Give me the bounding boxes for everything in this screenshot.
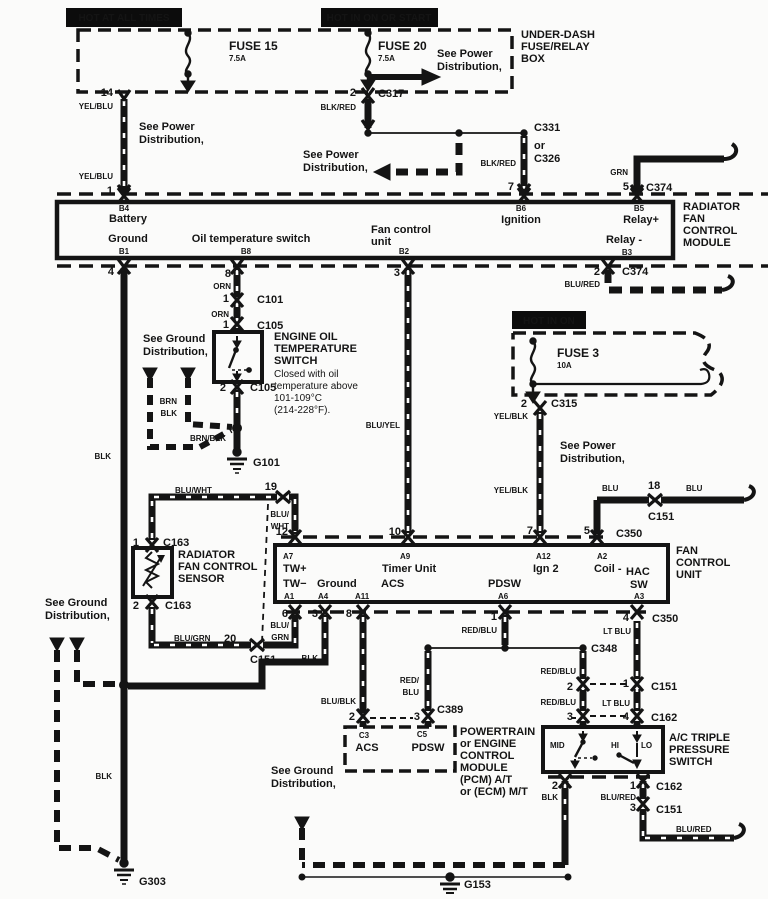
fuse3-feed-line xyxy=(536,369,709,384)
label-fcu-a11: A11 xyxy=(355,592,370,601)
label-module-ignition: Ignition xyxy=(501,214,541,226)
label-wire-orn-1: ORN xyxy=(213,282,231,291)
label-hot-in-on-or-start: HOT IN ON OR START xyxy=(327,13,432,24)
label-wire-ltblu-2: LT BLU xyxy=(603,627,631,636)
label-conn-c350-bot: C350 xyxy=(652,613,678,625)
label-wire-redblu-1: RED/BLU xyxy=(461,626,497,635)
wire-gnd-left-2 xyxy=(77,650,118,684)
label-conn-c326-or: or xyxy=(534,140,546,152)
engine-oil-temp-switch-symbol xyxy=(229,336,251,381)
label-eots-3: SWITCH xyxy=(274,355,317,367)
label-rfcs-1: RADIATOR xyxy=(178,549,235,561)
label-fcu-twminus: TW− xyxy=(283,578,307,590)
label-rfcm-2: FAN xyxy=(683,213,705,225)
label-module-b1: B1 xyxy=(119,247,130,256)
label-module-fan-b: unit xyxy=(371,236,391,248)
label-wire-yelblu-2: YEL/BLU xyxy=(79,172,113,181)
label-fcu-a4: A4 xyxy=(318,592,329,601)
label-pin-2-c315: 2 xyxy=(521,398,527,410)
label-module-b2: B2 xyxy=(399,247,410,256)
label-module-oil-temp: Oil temperature switch xyxy=(192,233,311,245)
label-fcu-ign2: Ign 2 xyxy=(533,563,559,575)
label-pin-1-a6: 1 xyxy=(491,611,497,623)
label-fcu-pdsw: PDSW xyxy=(488,578,522,590)
label-wire-bluyel: BLU/YEL xyxy=(366,421,400,430)
label-conn-c326: C326 xyxy=(534,153,560,165)
label-pin-2-c105: 2 xyxy=(220,382,226,394)
label-pin-20: 20 xyxy=(224,633,236,645)
label-wire-redblu-pcm-b: BLU xyxy=(403,688,420,697)
label-pcm-1: POWERTRAIN xyxy=(460,726,535,738)
gnd-dist-arrow-brn xyxy=(143,368,157,381)
label-fuse20-amp: 7.5A xyxy=(378,54,395,63)
label-pin-4-c162: 4 xyxy=(623,711,630,723)
label-pin-5-c374: 5 xyxy=(623,181,629,193)
label-module-b5: B5 xyxy=(634,204,645,213)
label-pin-18: 18 xyxy=(648,480,660,492)
label-see-power-1b: Distribution, xyxy=(437,61,502,73)
label-fcu-acs: ACS xyxy=(381,578,404,590)
see-power-left-arrowhead xyxy=(374,164,390,180)
label-eots-2: TEMPERATURE xyxy=(274,343,357,355)
label-pin-2-c374: 2 xyxy=(594,266,600,278)
label-see-power-3a: See Power xyxy=(303,149,359,161)
label-wire-blk-5: BLK xyxy=(96,772,113,781)
label-module-b8: B8 xyxy=(241,247,252,256)
label-fuse3-amp: 10A xyxy=(557,361,572,370)
gnd-dist-arrow-left2 xyxy=(70,638,84,651)
label-conn-c163-bot: C163 xyxy=(165,600,191,612)
label-wire-yelblk-2: YEL/BLK xyxy=(494,486,528,495)
label-wire-blkred-2: BLK/RED xyxy=(480,159,516,168)
label-see-power-1a: See Power xyxy=(437,48,493,60)
ground-g101 xyxy=(227,448,247,473)
label-conn-c151-18: C151 xyxy=(648,511,674,523)
label-fuse20-name: FUSE 20 xyxy=(378,39,427,53)
radiator-fan-sensor-symbol xyxy=(143,552,165,588)
label-pin-1-c163: 1 xyxy=(133,537,139,549)
wiring-diagram-page: HOT AT ALL TIMESHOT IN ON OR STARTFUSE 1… xyxy=(0,0,768,899)
label-gnd-g101: G101 xyxy=(253,457,280,469)
label-gnd-g303: G303 xyxy=(139,876,166,888)
label-wire-yelblu-1: YEL/BLU xyxy=(79,102,113,111)
label-pin-3-c151: 3 xyxy=(630,802,636,814)
gnd-dist-arrow-left1 xyxy=(50,638,64,651)
label-pcm-c5: C5 xyxy=(417,730,428,739)
label-fcu-coil: Coil - xyxy=(594,563,622,575)
label-see-power-4b: Distribution, xyxy=(560,453,625,465)
label-underdash-1: UNDER-DASH xyxy=(521,29,595,41)
label-see-ground-3b: Distribution, xyxy=(271,778,336,790)
label-see-ground-1b: Distribution, xyxy=(143,346,208,358)
label-pin-3-c389: 3 xyxy=(414,711,420,723)
label-underdash-2: FUSE/RELAY xyxy=(521,41,590,53)
diagram-labels: HOT AT ALL TIMESHOT IN ON OR STARTFUSE 1… xyxy=(45,13,740,891)
label-pin-2-acts: 2 xyxy=(552,780,558,792)
label-pin-8-a11: 8 xyxy=(346,608,352,620)
label-pin-3-b2: 3 xyxy=(394,267,400,279)
flow-arrows xyxy=(50,69,440,830)
label-pcm-pdsw: PDSW xyxy=(412,742,446,754)
label-pin-1-c105: 1 xyxy=(223,319,229,331)
label-conn-c348: C348 xyxy=(591,643,617,655)
label-pcm-c3: C3 xyxy=(359,731,370,740)
label-module-ground: Ground xyxy=(108,233,148,245)
label-conn-c151-mid: C151 xyxy=(651,681,677,693)
label-module-b3: B3 xyxy=(622,248,633,257)
label-conn-c374-top: C374 xyxy=(646,182,673,194)
label-acts-3: SWITCH xyxy=(669,756,712,768)
label-eots-note-4: (214-228°F). xyxy=(274,405,330,416)
label-fuse3-name: FUSE 3 xyxy=(557,346,599,360)
label-see-ground-3a: See Ground xyxy=(271,765,333,777)
label-pin-4-a3: 4 xyxy=(623,612,630,624)
label-rfcm-3: CONTROL xyxy=(683,225,738,237)
label-see-ground-1a: See Ground xyxy=(143,333,205,345)
hot-in-on-fuse-box-outline xyxy=(513,333,722,395)
label-wire-blu-2: BLU xyxy=(686,484,703,493)
label-conn-c317: C317 xyxy=(378,88,404,100)
label-module-relay-plus: Relay+ xyxy=(623,214,659,226)
label-see-ground-2a: See Ground xyxy=(45,597,107,609)
label-acts-2: PRESSURE xyxy=(669,744,730,756)
label-wire-brn: BRN xyxy=(160,397,178,406)
label-wire-redblu-pcm-a: RED/ xyxy=(400,676,420,685)
label-wire-blugrn-1: BLU/GRN xyxy=(174,634,211,643)
label-rfcs-3: SENSOR xyxy=(178,573,225,585)
label-rfcm-4: MODULE xyxy=(683,237,731,249)
label-fcu-timer-unit: Timer Unit xyxy=(382,563,437,575)
label-conn-c162-bot: C162 xyxy=(656,781,682,793)
label-pcm-6: or (ECM) M/T xyxy=(460,786,528,798)
label-eots-1: ENGINE OIL xyxy=(274,331,338,343)
label-wire-grn: GRN xyxy=(610,168,628,177)
gnd-dist-arrow-bottom xyxy=(295,817,309,830)
label-module-battery: Battery xyxy=(109,213,148,225)
label-pin-1-c151: 1 xyxy=(623,678,629,690)
label-hot-in-on: HOT IN ON xyxy=(523,316,575,327)
label-wire-bluwht-2b: WHT xyxy=(271,522,289,531)
c151-connector-link xyxy=(262,504,268,642)
label-pin-1-c101: 1 xyxy=(223,293,229,305)
label-pin-2-c151: 2 xyxy=(567,681,573,693)
label-fuse15-name: FUSE 15 xyxy=(229,39,278,53)
label-wire-bluwht-2a: BLU/ xyxy=(270,510,289,519)
label-wire-blk-2: BLK xyxy=(95,452,112,461)
label-pin-2-c163: 2 xyxy=(133,600,139,612)
label-acts-1: A/C TRIPLE xyxy=(669,732,730,744)
label-module-b6: B6 xyxy=(516,204,527,213)
label-pin-3-a4: 3 xyxy=(312,608,318,620)
label-conn-c389: C389 xyxy=(437,704,463,716)
label-wire-blugrn-2a: BLU/ xyxy=(270,621,289,630)
label-wire-brnblk: BRN/BLK xyxy=(190,434,226,443)
label-wire-redblu-3: RED/BLU xyxy=(540,698,576,707)
label-module-b4: B4 xyxy=(119,204,130,213)
label-wire-blublk: BLU/BLK xyxy=(321,697,356,706)
label-fcu-hac: HAC xyxy=(626,566,650,578)
label-module-relay-minus: Relay - xyxy=(606,234,642,246)
label-pin-1: 1 xyxy=(107,185,113,197)
label-fcu-sw: SW xyxy=(630,579,648,591)
label-wire-blk-3: BLK xyxy=(302,654,319,663)
label-conn-c151-bot: C151 xyxy=(656,804,682,816)
label-acts-mid: MID xyxy=(550,741,565,750)
label-eots-note-1: Closed with oil xyxy=(274,369,338,380)
label-wire-blured-3: BLU/RED xyxy=(676,825,712,834)
label-fcu-a7: A7 xyxy=(283,552,294,561)
label-pcm-4: MODULE xyxy=(460,762,508,774)
label-conn-c101: C101 xyxy=(257,294,283,306)
label-pin-10: 10 xyxy=(389,526,401,538)
label-conn-c151-sensor: C151 xyxy=(250,654,276,666)
label-gnd-g153: G153 xyxy=(464,879,491,891)
radiator-fan-control-module-box xyxy=(57,202,673,258)
label-wire-yelblk-1: YEL/BLK xyxy=(494,412,528,421)
label-fuse15-amp: 7.5A xyxy=(229,54,246,63)
label-pin-4: 4 xyxy=(108,266,115,278)
fuse-3 xyxy=(526,338,709,403)
ground-g303 xyxy=(114,859,134,884)
wire-see-power-arrow xyxy=(390,143,459,172)
label-wire-blured-2: BLU/RED xyxy=(600,793,636,802)
label-conn-c331: C331 xyxy=(534,122,560,134)
label-pin-8: 8 xyxy=(225,268,231,280)
label-pin-19: 19 xyxy=(265,481,277,493)
label-fcu-a3: A3 xyxy=(634,592,645,601)
label-pcm-3: CONTROL xyxy=(460,750,515,762)
label-wire-blk-1: BLK xyxy=(161,409,178,418)
label-rfcm-1: RADIATOR xyxy=(683,201,740,213)
label-see-power-3b: Distribution, xyxy=(303,162,368,174)
label-pin-5-c350: 5 xyxy=(584,525,590,537)
label-fcu-label-3: UNIT xyxy=(676,569,702,581)
label-see-power-2a: See Power xyxy=(139,121,195,133)
label-pcm-2: or ENGINE xyxy=(460,738,516,750)
ac-triple-pressure-switch-symbols xyxy=(571,731,641,768)
label-pin-2-c389: 2 xyxy=(349,711,355,723)
label-pcm-5: (PCM) A/T xyxy=(460,774,512,786)
label-wire-orn-2: ORN xyxy=(211,310,229,319)
label-pcm-acs: ACS xyxy=(355,742,378,754)
label-underdash-3: BOX xyxy=(521,53,546,65)
label-fcu-a2: A2 xyxy=(597,552,608,561)
ground-g153 xyxy=(440,873,460,893)
label-conn-c163-top: C163 xyxy=(163,537,189,549)
wiring-diagram-canvas: HOT AT ALL TIMESHOT IN ON OR STARTFUSE 1… xyxy=(0,0,768,899)
label-fcu-label-2: CONTROL xyxy=(676,557,731,569)
label-pin-6: 6 xyxy=(282,608,288,620)
label-wire-blugrn-2b: GRN xyxy=(271,633,289,642)
label-fcu-a1: A1 xyxy=(284,592,295,601)
label-hot-at-all-times: HOT AT ALL TIMES xyxy=(78,13,169,24)
label-eots-note-3: 101-109°C xyxy=(274,393,322,404)
label-rfcs-2: FAN CONTROL xyxy=(178,561,258,573)
label-pin-14: 14 xyxy=(101,87,114,99)
label-see-ground-2b: Distribution, xyxy=(45,610,110,622)
label-wire-blured-1: BLU/RED xyxy=(564,280,600,289)
label-fcu-label-1: FAN xyxy=(676,545,698,557)
fuse-20 xyxy=(361,30,375,91)
gnd-dist-arrow-blk xyxy=(181,368,195,381)
label-fcu-twplus: TW+ xyxy=(283,563,307,575)
label-conn-c105-bot: C105 xyxy=(250,382,276,394)
label-conn-c374-bot: C374 xyxy=(622,266,649,278)
label-pin-2-c317: 2 xyxy=(350,87,356,99)
label-fcu-a12: A12 xyxy=(536,552,551,561)
label-module-fan-a: Fan control xyxy=(371,224,431,236)
label-wire-blk-4: BLK xyxy=(542,793,559,802)
label-pin-7-c350: 7 xyxy=(527,525,533,537)
label-pin-7-c374: 7 xyxy=(508,181,514,193)
label-acts-lo: LO xyxy=(641,741,652,750)
label-wire-blu-1: BLU xyxy=(602,484,619,493)
label-pin-3-c162: 3 xyxy=(567,711,573,723)
label-conn-c162-top: C162 xyxy=(651,712,677,724)
label-conn-c350-top: C350 xyxy=(616,528,642,540)
label-fcu-a9: A9 xyxy=(400,552,411,561)
label-see-power-2b: Distribution, xyxy=(139,134,204,146)
label-wire-blkred-1: BLK/RED xyxy=(320,103,356,112)
label-wire-bluwht-1: BLU/WHT xyxy=(175,486,212,495)
label-conn-c315: C315 xyxy=(551,398,577,410)
label-pin-1-acts: 1 xyxy=(630,780,636,792)
label-see-power-4a: See Power xyxy=(560,440,616,452)
label-wire-ltblu-1: LT BLU xyxy=(602,699,630,708)
label-acts-hi: HI xyxy=(611,741,619,750)
label-eots-note-2: temperature above xyxy=(274,381,358,392)
fuse-15 xyxy=(181,30,195,92)
label-wire-redblu-2: RED/BLU xyxy=(540,667,576,676)
label-fcu-ground: Ground xyxy=(317,578,357,590)
label-fcu-a6: A6 xyxy=(498,592,509,601)
